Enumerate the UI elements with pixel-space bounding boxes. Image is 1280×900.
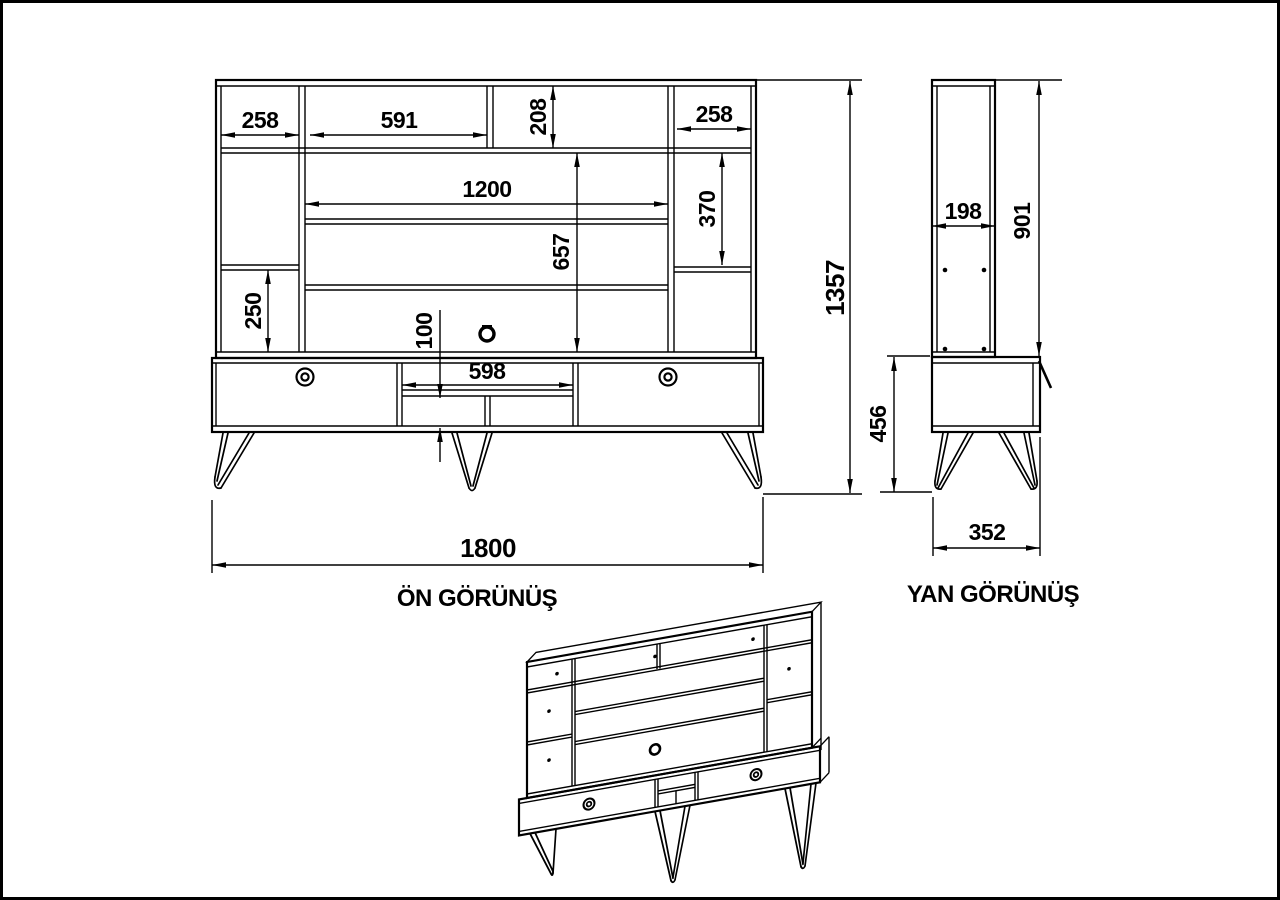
- side-view: 198 901 456 352 YAN GÖRÜNÜŞ: [865, 80, 1080, 608]
- iso-hairpin-legs: [530, 783, 816, 900]
- dim-front-tv-opening-width: 1200: [462, 176, 511, 202]
- dim-front-base-opening-width: 598: [469, 358, 507, 384]
- drawer-knob: [660, 369, 677, 386]
- dim-front-top-section-height: 208: [525, 98, 551, 136]
- shelf-pin-hole: [943, 347, 948, 352]
- dim-side-upper-depth: 198: [945, 198, 983, 224]
- dim-front-tv-section-height: 657: [548, 234, 574, 271]
- side-base: [932, 357, 1051, 432]
- shelf-pin-hole: [943, 268, 948, 273]
- side-view-title: YAN GÖRÜNÜŞ: [907, 581, 1080, 608]
- dim-front-left-shelf-width: 258: [242, 107, 280, 133]
- dim-side-upper-height: 901: [1009, 202, 1035, 240]
- dim-side-base-depth: 352: [969, 519, 1006, 545]
- dim-front-left-section-height: 250: [240, 293, 266, 330]
- side-hairpin-leg-front: [935, 433, 973, 489]
- technical-drawing: 258 591 208 258 1200 370 657 250 100 598…: [0, 0, 1280, 900]
- shelf-pin-hole: [982, 347, 987, 352]
- iso-cable-hole: [650, 744, 660, 756]
- drawer-knob: [297, 369, 314, 386]
- isometric-view: [519, 601, 829, 900]
- front-view: 258 591 208 258 1200 370 657 250 100 598…: [212, 80, 862, 612]
- dim-front-right-section-height: 370: [694, 191, 720, 228]
- hairpin-leg-center: [452, 433, 492, 491]
- dim-front-total-height: 1357: [820, 260, 850, 316]
- front-hutch: [216, 80, 756, 358]
- front-dimensions: 258 591 208 258 1200 370 657 250 100 598…: [212, 80, 862, 573]
- dim-front-base-opening-height: 100: [411, 313, 437, 350]
- iso-drawer-knob: [584, 798, 595, 811]
- dim-front-right-shelf-width: 258: [696, 101, 734, 127]
- hairpin-leg-right: [722, 433, 761, 488]
- iso-drawer-knob: [751, 768, 762, 781]
- dim-front-total-width: 1800: [460, 533, 516, 563]
- front-view-title: ÖN GÖRÜNÜŞ: [397, 585, 558, 612]
- dim-front-top-shelf-width: 591: [381, 107, 419, 133]
- dim-side-base-height: 456: [865, 406, 891, 443]
- shelf-pin-hole: [982, 268, 987, 273]
- side-hairpin-leg-back: [999, 433, 1037, 489]
- cable-hole: [480, 327, 494, 342]
- hairpin-leg-left: [215, 433, 254, 488]
